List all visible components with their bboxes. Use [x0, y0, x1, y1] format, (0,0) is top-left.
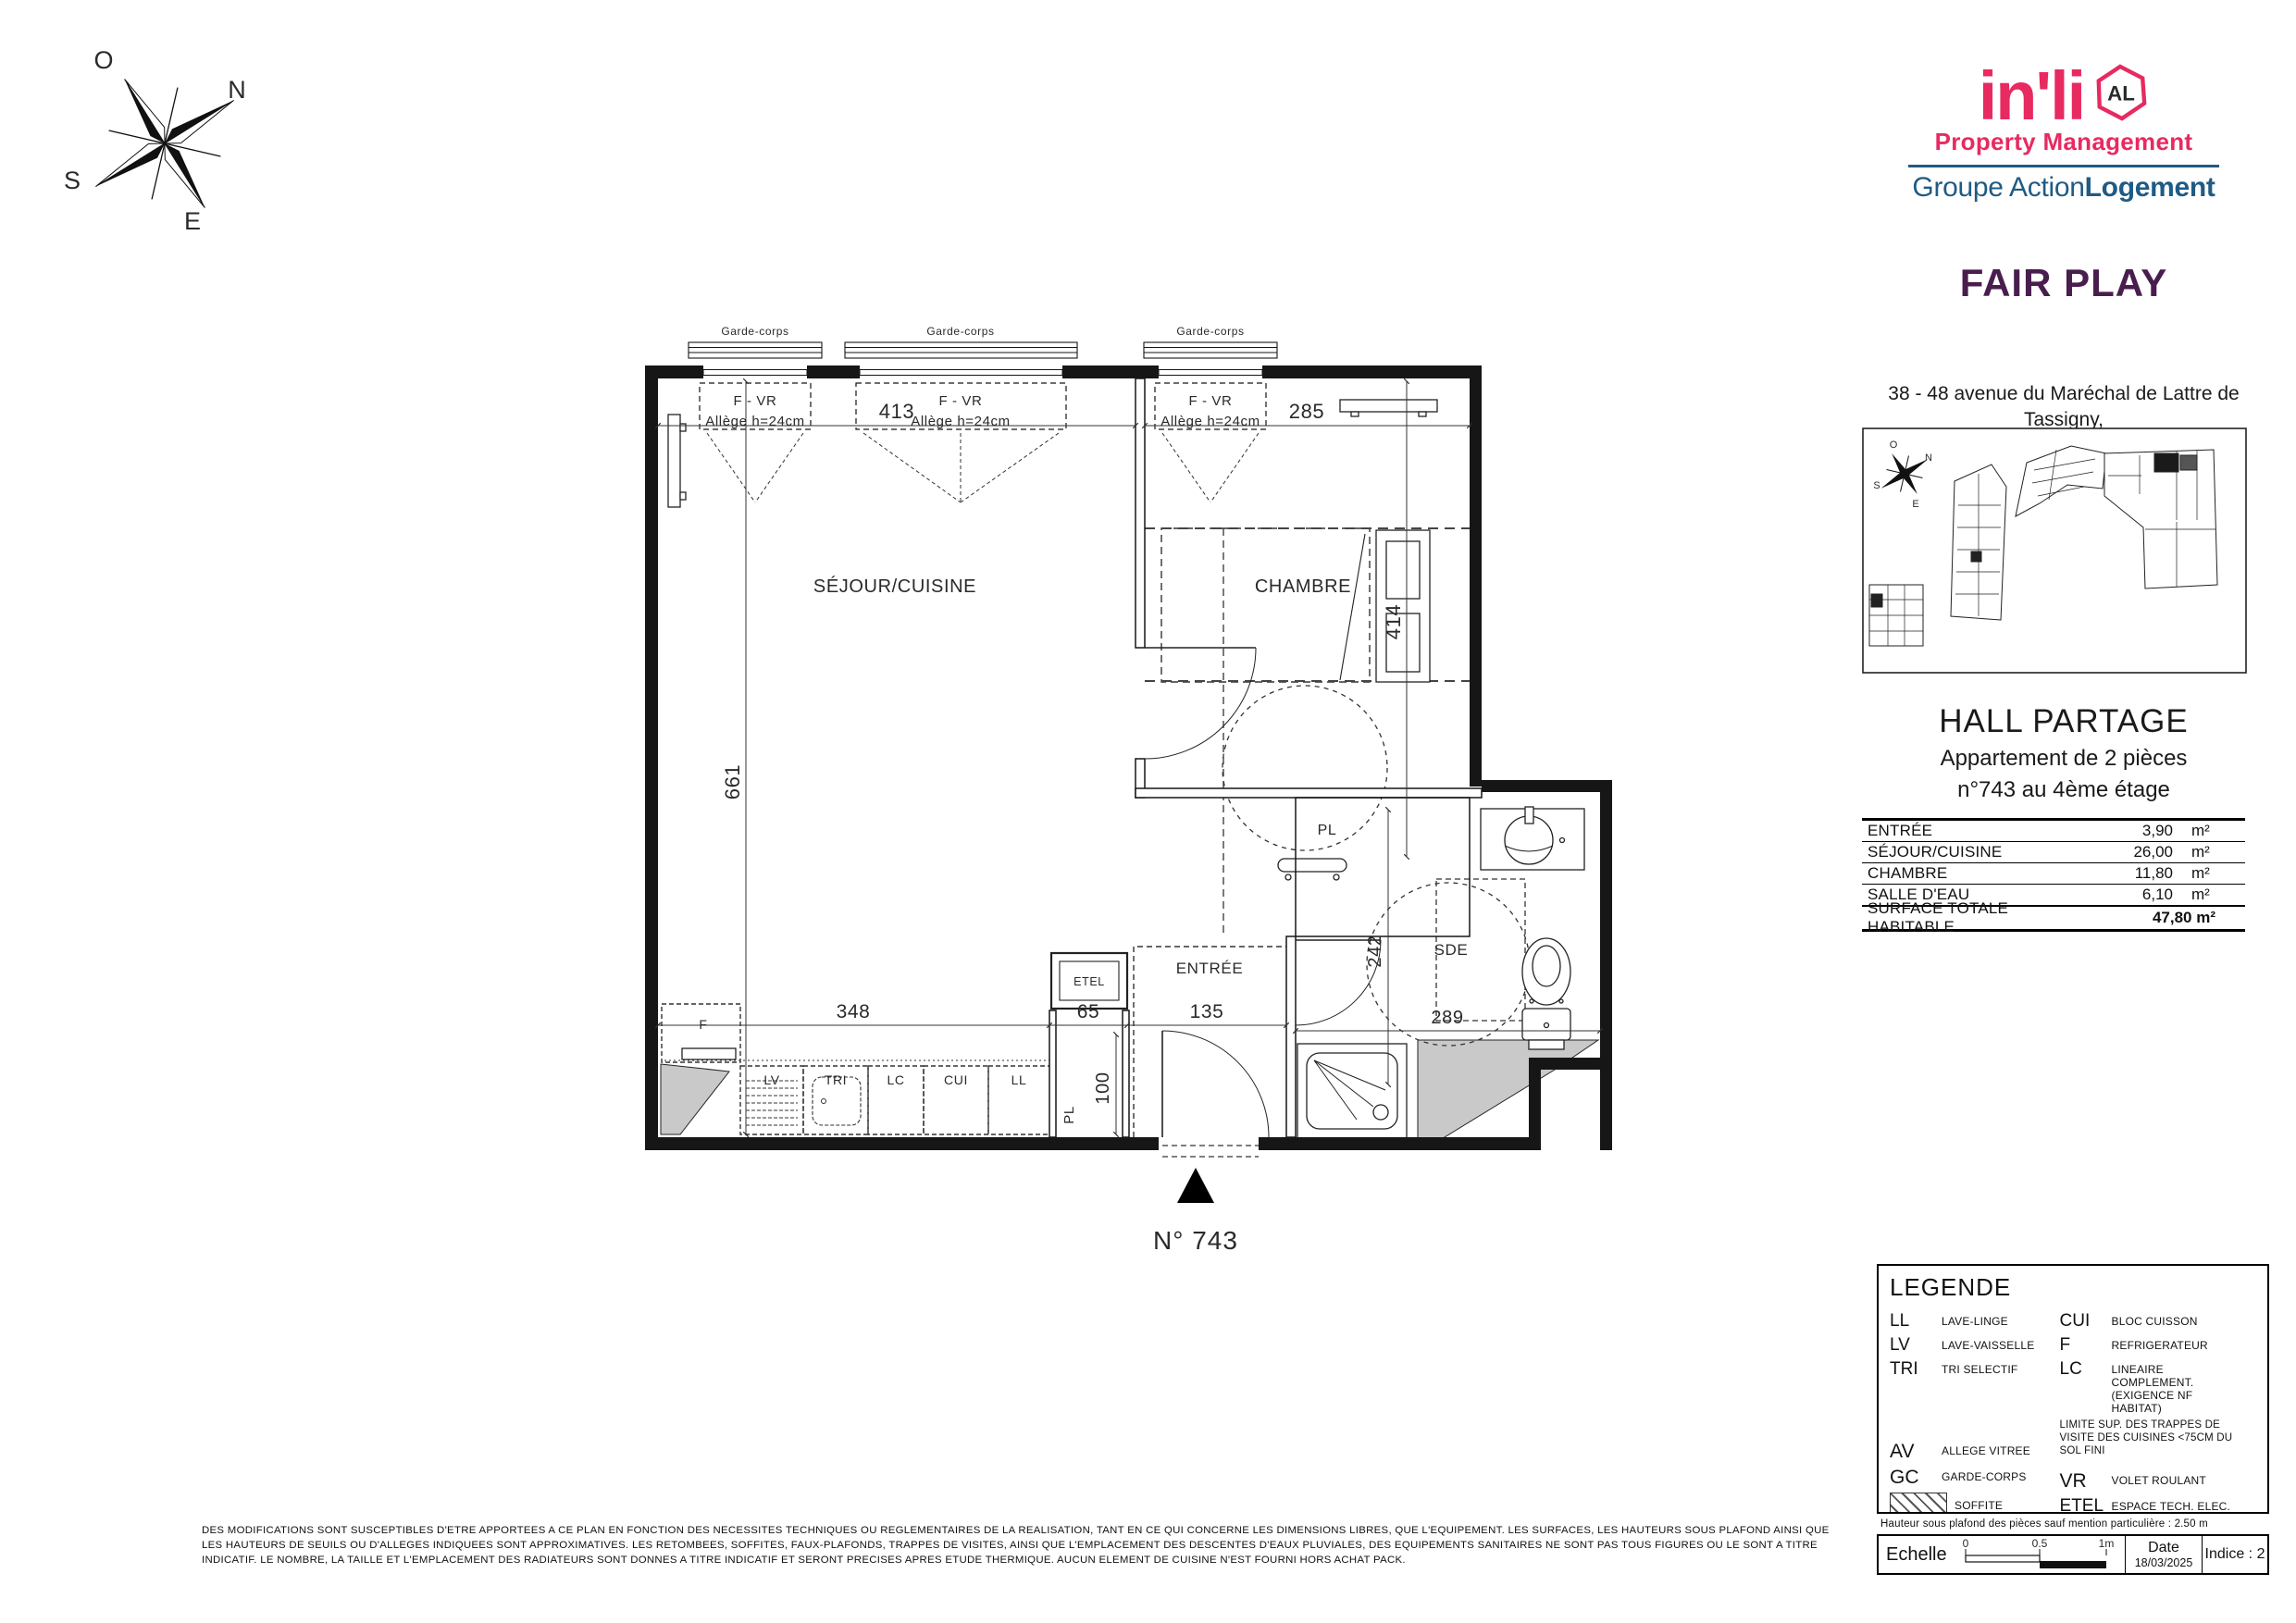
row-unit: m² [2173, 843, 2240, 861]
site-highlighted-unit [2154, 453, 2178, 472]
group-regular: Groupe Action [1912, 172, 2084, 203]
label: VOLET ROULANT [2112, 1470, 2206, 1487]
row-unit: m² [2173, 886, 2240, 904]
unit-number-label: N° 743 [1153, 1226, 1238, 1255]
compass-west-label: O [93, 46, 113, 74]
dim-661: 661 [721, 764, 744, 800]
legend-box: LEGENDE LLLAVE-LINGE LVLAVE-VAISSELLE TR… [1877, 1264, 2269, 1514]
door-chambre [1145, 648, 1256, 759]
project-title: FAIR PLAY [1879, 261, 2249, 305]
garde-corps-label: Garde-corps [926, 325, 994, 338]
legend-item-tri: TRITRI SELECTIF [1890, 1359, 2060, 1380]
dim-289: 289 [1431, 1008, 1463, 1028]
door-entrance [1162, 1031, 1269, 1137]
site-compass-west: O [1890, 440, 1898, 451]
dim-135: 135 [1190, 1001, 1224, 1022]
label: LINEAIRE COMPLEMENT. (EXIGENCE NF HABITA… [2112, 1359, 2241, 1415]
closet-label-lower: PL [1061, 1106, 1077, 1124]
window-allege-label: Allège h=24cm [705, 414, 804, 429]
scale-label: Echelle [1886, 1544, 1947, 1566]
compass-east-label: E [184, 207, 201, 235]
legend-item-ll: LLLAVE-LINGE [1890, 1311, 2060, 1332]
logo-block: in'li AL Property Management Groupe Acti… [1879, 61, 2249, 204]
label: SOFFITE [1955, 1493, 2003, 1512]
scale-tick-1m: 1m [2098, 1538, 2114, 1550]
al-badge-label: AL [2107, 82, 2135, 105]
address-line-1: 38 - 48 avenue du Maréchal de Lattre de … [1851, 381, 2277, 433]
garde-corps-label: Garde-corps [721, 325, 788, 338]
label: GARDE-CORPS [1942, 1467, 2027, 1483]
total-value: 47,80 m² [2077, 909, 2240, 927]
site-building-2 [1951, 465, 2006, 620]
legend-item-lc: LCLINEAIRE COMPLEMENT. (EXIGENCE NF HABI… [2060, 1359, 2256, 1415]
radiator-sejour [668, 415, 686, 507]
label: LAVE-LINGE [1942, 1311, 2008, 1328]
abbr: CUI [2060, 1311, 2112, 1332]
row-label: CHAMBRE [1868, 864, 2106, 883]
dim-285: 285 [1289, 400, 1325, 423]
legend-item-lv: LVLAVE-VAISSELLE [1890, 1335, 2060, 1356]
legend-item-av: AVALLEGE VITREE [1890, 1441, 2060, 1463]
legend-title: LEGENDE [1890, 1273, 2256, 1302]
scale-bar: 0 0.5 1m [1958, 1538, 2117, 1571]
index-cell: Indice : 2 [2203, 1536, 2267, 1573]
dim-242: 242 [1365, 935, 1385, 967]
hall-name: HALL PARTAGE [1851, 703, 2277, 740]
legend-note: LIMITE SUP. DES TRAPPES DE VISITE DES CU… [2060, 1419, 2256, 1457]
row-value: 26,00 [2106, 843, 2173, 861]
towel-dryer [1278, 859, 1347, 880]
row-value: 11,80 [2106, 864, 2173, 883]
legend-item-soffite: SOFFITE [1890, 1493, 2060, 1514]
abbr: LC [2060, 1359, 2112, 1380]
closet-label-upper: PL [1318, 823, 1337, 838]
row-unit: m² [2173, 864, 2240, 883]
abbr: ETEL [2060, 1496, 2112, 1514]
abbr: VR [2060, 1470, 2112, 1493]
site-compass-south: S [1873, 480, 1880, 491]
bed-outline [1161, 528, 1370, 682]
compass-rose-icon: O N S E [56, 37, 264, 236]
shower [1297, 1044, 1407, 1138]
window-allege-label: Allège h=24cm [1160, 414, 1260, 429]
label: ESPACE TECH. ELEC. DU LOGEMENT [2112, 1496, 2241, 1514]
abbr: LV [1890, 1335, 1942, 1356]
apartment-floor: n°743 au 4ème étage [1851, 777, 2277, 803]
site-key-plan: O N S E [1862, 427, 2247, 674]
abbr: TRI [1890, 1359, 1942, 1380]
abbr: AV [1890, 1441, 1942, 1463]
date-value: 18/03/2025 [2126, 1556, 2202, 1569]
partitions [1049, 378, 1482, 1137]
window-fvr-label: F - VR [939, 393, 983, 409]
legend-item-f: FREFRIGERATEUR [2060, 1335, 2256, 1356]
plan-sheet: O N S E in'li AL Property Management Gro… [0, 0, 2296, 1623]
logo-tagline: Property Management [1879, 128, 2249, 156]
washer-label: LL [1011, 1072, 1027, 1087]
compass-north-label: N [228, 76, 246, 104]
row-unit: m² [2173, 822, 2240, 840]
legend-item-etel: ETELESPACE TECH. ELEC. DU LOGEMENT [2060, 1496, 2256, 1514]
entrance-arrow-icon [1177, 1168, 1214, 1203]
group-wordmark: Groupe ActionLogement [1879, 172, 2249, 204]
abbr: GC [1890, 1467, 1942, 1489]
group-bold: Logement [2085, 172, 2215, 203]
site-building-1 [1869, 585, 1923, 646]
cooktop-label: CUI [944, 1072, 968, 1087]
label: ALLEGE VITREE [1942, 1441, 2030, 1457]
row-value: 3,90 [2106, 822, 2173, 840]
disclaimer-line-2: LES HAUTEURS DE SEUILS OU D'ALLEGES INDI… [202, 1538, 1831, 1553]
dim-414: 414 [1382, 604, 1405, 640]
label: TRI SELECTIF [1942, 1359, 2017, 1376]
dim-65: 65 [1077, 1001, 1100, 1022]
row-value: 6,10 [2106, 886, 2173, 904]
title-block: Echelle 0 0.5 1m Date 18/03/2025 Indice … [1877, 1534, 2269, 1575]
apartment-heading: HALL PARTAGE Appartement de 2 pièces n°7… [1851, 703, 2277, 803]
table-total-row: SURFACE TOTALE HABITABLE 47,80 m² [1862, 906, 2245, 932]
window-allege-label: Allège h=24cm [911, 414, 1010, 429]
label: REFRIGERATEUR [2112, 1335, 2208, 1352]
room-label-entree: ENTRÉE [1176, 960, 1244, 977]
inli-logo: in'li [1979, 61, 2084, 131]
window-fvr-label: F - VR [734, 393, 777, 409]
row-label: ENTRÉE [1868, 822, 2106, 840]
room-label-sde: SDE [1434, 941, 1469, 959]
toilet [1522, 938, 1570, 1049]
compass-south-label: S [64, 167, 81, 194]
turning-circle [1222, 686, 1387, 850]
legend-item-gc: GCGARDE-CORPS [1890, 1467, 2060, 1489]
site-compass-east: E [1912, 499, 1918, 510]
dim-413: 413 [879, 400, 915, 423]
radiator-chambre [1340, 400, 1437, 416]
radiator-kitchen [682, 1048, 736, 1059]
scale-tick-0: 0 [1962, 1538, 1968, 1550]
disclaimer-line-1: DES MODIFICATIONS SONT SUSCEPTIBLES D'ET… [202, 1523, 1831, 1538]
dishwasher-label: LV [763, 1072, 779, 1087]
site-compass-north: N [1925, 452, 1932, 464]
disclaimer-line-3: INDICATIF. LE NOMBRE, LA TAILLE ET L'EMP… [202, 1553, 1831, 1567]
abbr: LL [1890, 1311, 1942, 1332]
date-label: Date [2126, 1540, 2202, 1556]
apartment-type: Appartement de 2 pièces [1851, 746, 2277, 772]
ceiling-height-note: Hauteur sous plafond des pièces sauf men… [1880, 1518, 2269, 1530]
label: LAVE-VAISSELLE [1942, 1335, 2034, 1352]
bathroom-sink [1481, 807, 1584, 870]
abbr: F [2060, 1335, 2112, 1356]
row-label: SÉJOUR/CUISINE [1868, 843, 2106, 861]
date-cell: Date 18/03/2025 [2126, 1536, 2203, 1573]
window-swing-lines [707, 433, 1259, 502]
legend-item-vr: VRVOLET ROULANT [2060, 1470, 2256, 1493]
logo-divider [1908, 165, 2219, 167]
soffite-swatch-icon [1890, 1493, 1947, 1514]
tri-label: TRI [825, 1072, 847, 1087]
legend-item-cui: CUIBLOC CUISSON [2060, 1311, 2256, 1332]
scale-cell: Echelle 0 0.5 1m [1879, 1536, 2126, 1573]
total-label: SURFACE TOTALE HABITABLE [1868, 899, 2077, 936]
disclaimer: DES MODIFICATIONS SONT SUSCEPTIBLES D'ET… [202, 1523, 1831, 1567]
garde-corps-bars [689, 342, 1277, 358]
room-label-chambre: CHAMBRE [1255, 576, 1351, 597]
surface-table: ENTRÉE 3,90 m² SÉJOUR/CUISINE 26,00 m² C… [1862, 818, 2245, 932]
window-fvr-label: F - VR [1189, 393, 1233, 409]
bed-fold-line [1340, 534, 1365, 680]
room-label-sejour: SÉJOUR/CUISINE [813, 576, 976, 597]
lc-label: LC [887, 1072, 904, 1087]
dim-348: 348 [837, 1001, 871, 1022]
garde-corps-label: Garde-corps [1176, 325, 1244, 338]
table-row: ENTRÉE 3,90 m² [1862, 821, 2245, 842]
label: BLOC CUISSON [2112, 1311, 2198, 1328]
dim-100: 100 [1093, 1072, 1113, 1104]
scale-tick-05: 0.5 [2031, 1538, 2047, 1550]
fridge-label: F [699, 1017, 707, 1032]
al-hexagon-icon: AL [2091, 61, 2149, 124]
floor-plan: Garde-corps Garde-corps Garde-corps F - … [629, 324, 1661, 1305]
table-row: SÉJOUR/CUISINE 26,00 m² [1862, 842, 2245, 863]
table-row: CHAMBRE 11,80 m² [1862, 863, 2245, 885]
etel-label: ETEL [1074, 975, 1105, 988]
